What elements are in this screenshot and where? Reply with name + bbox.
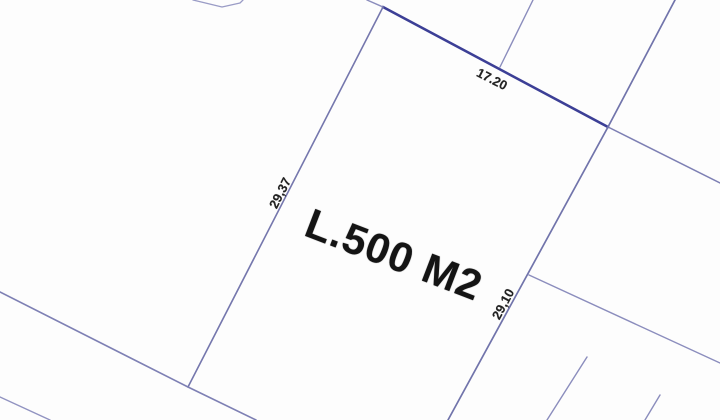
upper-cross-line (500, 0, 533, 67)
road-line (0, 292, 256, 420)
top-boundary (383, 7, 608, 127)
east-branch-line (529, 275, 720, 363)
road-line-lower (0, 397, 50, 420)
north-parcel-outline (193, 0, 243, 7)
top-boundary-extension-left (367, 0, 383, 7)
south-tick-line-1 (547, 357, 587, 420)
cadastral-plan: L.500 M2 17.20 29,37 29,10 (0, 0, 720, 420)
top-boundary-extension-right (608, 127, 720, 183)
right-boundary (448, 0, 675, 420)
south-tick-line-2 (645, 395, 660, 420)
boundary-lines-svg (0, 0, 720, 420)
